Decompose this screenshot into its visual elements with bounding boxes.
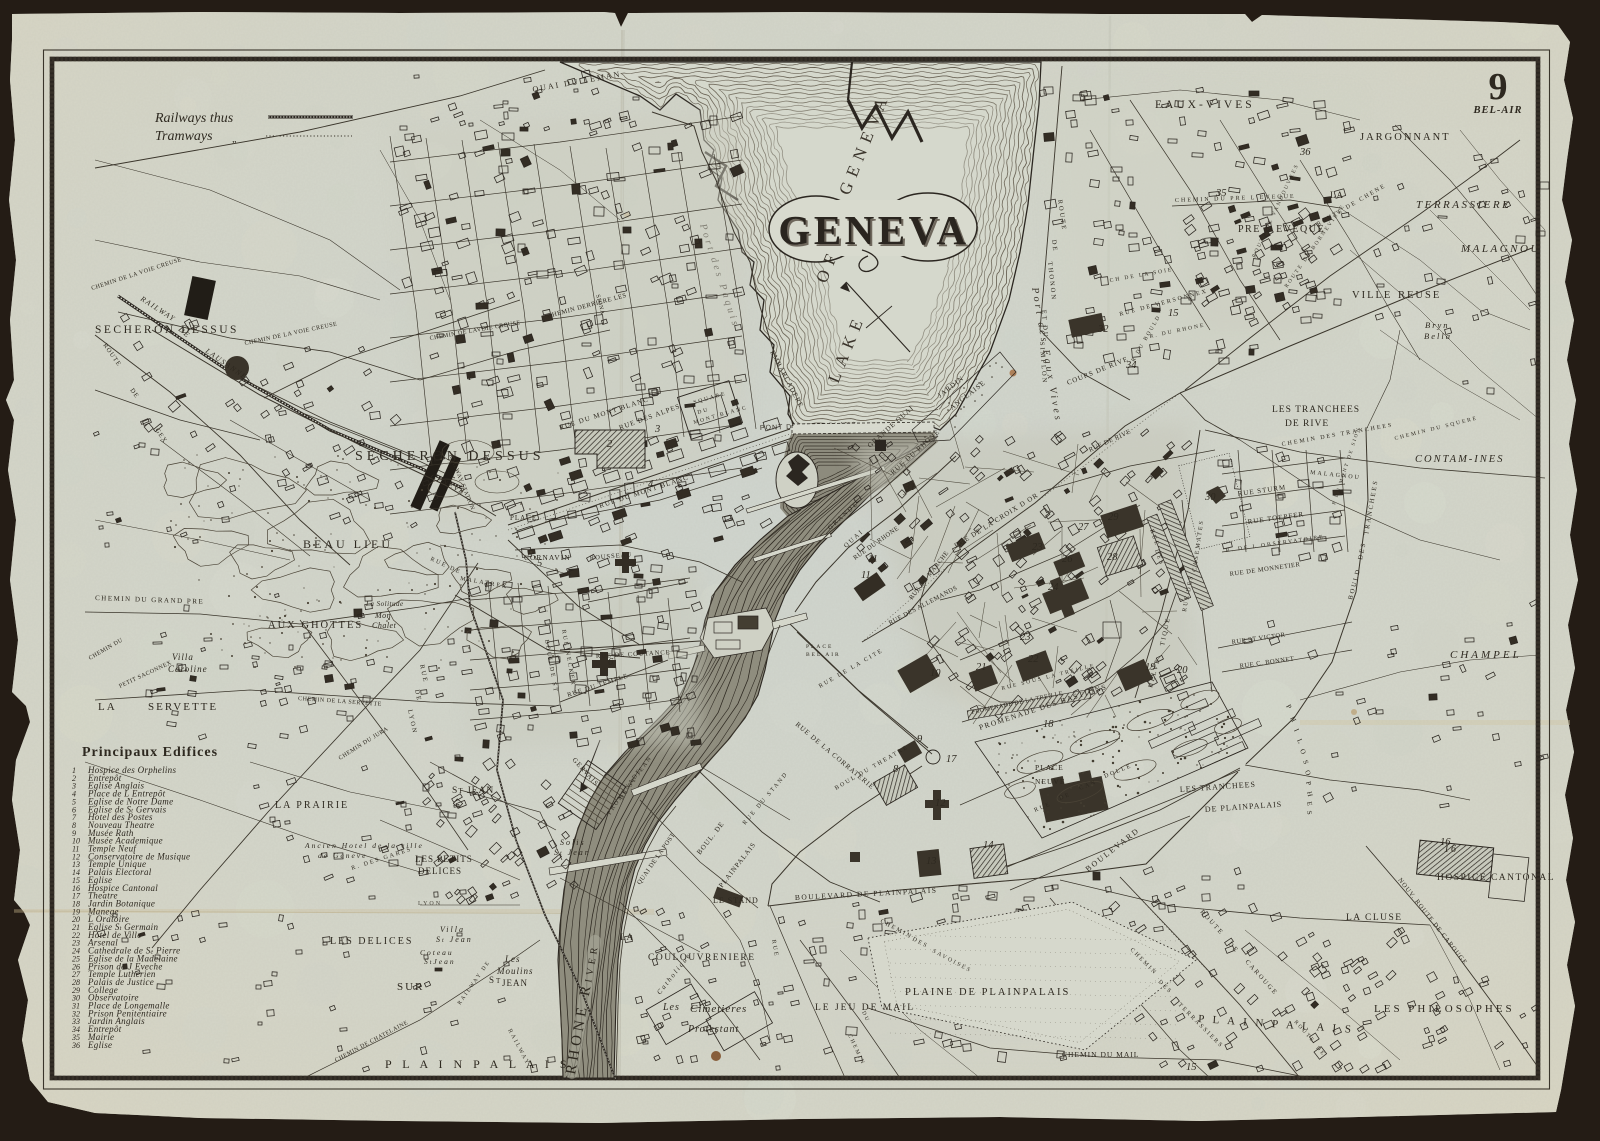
svg-text:AUX GHOTTES: AUX GHOTTES: [268, 620, 363, 631]
svg-text:LA PRAIRIE: LA PRAIRIE: [275, 800, 349, 811]
svg-text:Protestant: Protestant: [687, 1024, 739, 1035]
svg-text:23: 23: [1032, 542, 1043, 553]
svg-text:St Jean: St Jean: [436, 935, 473, 944]
svg-text:29: 29: [1108, 512, 1119, 523]
svg-text:SERVETTE: SERVETTE: [148, 701, 218, 713]
svg-text:DE RIVE: DE RIVE: [1285, 419, 1329, 429]
svg-text:4: 4: [648, 479, 654, 490]
svg-text:EAUX-VIVES: EAUX-VIVES: [1155, 99, 1255, 111]
svg-text:Chalet: Chalet: [372, 621, 397, 630]
svg-text:15: 15: [1186, 1062, 1197, 1073]
svg-text:28: 28: [1107, 552, 1118, 563]
svg-text:12: 12: [935, 798, 946, 809]
svg-text:HOSPICE CANTONAL: HOSPICE CANTONAL: [1437, 873, 1555, 883]
svg-text:DELICES: DELICES: [418, 866, 462, 876]
svg-text:Solis: Solis: [560, 838, 586, 847]
svg-text:PLACE: PLACE: [1035, 763, 1064, 772]
svg-text:20: 20: [1177, 665, 1188, 676]
svg-text:Caroline: Caroline: [168, 664, 208, 674]
svg-text:36: 36: [1299, 147, 1311, 158]
svg-text:Mon: Mon: [374, 611, 391, 620]
svg-text:REUSE: REUSE: [1398, 290, 1441, 301]
svg-text:BEL-AIR: BEL-AIR: [1472, 105, 1522, 116]
svg-text:5: 5: [537, 558, 542, 569]
svg-text:SECHERON DESSUS: SECHERON DESSUS: [95, 324, 239, 336]
svg-text:BEL AIR: BEL AIR: [806, 652, 841, 658]
svg-text:SUR: SUR: [397, 981, 424, 993]
svg-text:CHEMIN DU MAIL: CHEMIN DU MAIL: [1062, 1050, 1139, 1059]
svg-text:NEUVE: NEUVE: [1035, 777, 1065, 786]
svg-text:VILLE: VILLE: [1352, 290, 1392, 301]
svg-text:31: 31: [904, 482, 916, 493]
svg-text:14: 14: [983, 840, 994, 851]
svg-text:COULOUVRENIERE: COULOUVRENIERE: [648, 953, 756, 963]
svg-text:de Geneve: de Geneve: [318, 851, 367, 860]
svg-text:24: 24: [1048, 582, 1059, 593]
svg-text:23: 23: [1020, 632, 1031, 643]
svg-text:LA CLUSE: LA CLUSE: [1346, 913, 1403, 923]
svg-text:CONTAM-INES: CONTAM-INES: [1415, 454, 1504, 465]
svg-text:LES PETITS: LES PETITS: [415, 854, 473, 864]
svg-text:PLAINE DE PLAINPALAIS: PLAINE DE PLAINPALAIS: [905, 987, 1070, 998]
svg-text:Les: Les: [504, 954, 521, 964]
svg-text:10: 10: [930, 668, 941, 679]
svg-text:Bella: Bella: [1424, 331, 1452, 341]
svg-text:PLACE: PLACE: [510, 514, 537, 522]
svg-text:1: 1: [467, 372, 472, 383]
svg-text:PLACE: PLACE: [806, 644, 833, 650]
svg-text:Moulins: Moulins: [496, 966, 534, 976]
svg-text:JARGONNANT: JARGONNANT: [1360, 132, 1451, 143]
svg-text:2: 2: [607, 439, 613, 450]
svg-text:LES TRANCHEES: LES TRANCHEES: [1272, 405, 1360, 415]
svg-text:DE: DE: [1050, 239, 1058, 252]
svg-text:PRE L EVEQUE: PRE L EVEQUE: [1238, 224, 1325, 235]
svg-text:Coteau: Coteau: [420, 948, 454, 957]
svg-text:Les: Les: [662, 1002, 680, 1013]
svg-text:34: 34: [1125, 360, 1137, 371]
svg-text:36: 36: [71, 1041, 80, 1050]
svg-text:LA: LA: [1330, 190, 1344, 200]
svg-text:8: 8: [893, 764, 899, 775]
svg-text:CORNAVIN: CORNAVIN: [524, 553, 571, 562]
svg-text:35: 35: [1215, 188, 1227, 199]
svg-text:LE STAND: LE STAND: [713, 896, 759, 905]
svg-text:LA: LA: [98, 701, 117, 713]
svg-text:ST: ST: [489, 975, 502, 985]
svg-text:11: 11: [861, 570, 871, 581]
svg-text:6: 6: [608, 657, 614, 668]
svg-text:La Solitude: La Solitude: [365, 600, 404, 608]
svg-text:17: 17: [946, 754, 957, 765]
svg-text:LES PHILOSOPHES: LES PHILOSOPHES: [1374, 1003, 1515, 1015]
svg-text:27: 27: [1078, 522, 1089, 533]
svg-text:22: 22: [1028, 654, 1039, 665]
svg-text:Villa: Villa: [440, 925, 465, 934]
svg-text:Bryn: Bryn: [1425, 320, 1450, 330]
svg-text:BEAU LIEU: BEAU LIEU: [303, 537, 393, 551]
svg-text:3: 3: [654, 424, 660, 435]
svg-text:TERRASSIERE: TERRASSIERE: [1416, 199, 1511, 211]
svg-text:13: 13: [926, 856, 937, 867]
svg-text:Cimetieres: Cimetieres: [690, 1003, 747, 1015]
svg-text:MALAGNOU: MALAGNOU: [1460, 243, 1541, 255]
svg-text:32: 32: [1097, 324, 1109, 335]
svg-text:CHAMPEL: CHAMPEL: [1450, 649, 1522, 661]
svg-text:StJean: StJean: [424, 957, 456, 966]
svg-text:LES DELICES: LES DELICES: [330, 936, 413, 947]
svg-text:9: 9: [1489, 66, 1508, 108]
svg-text:11: 11: [868, 554, 878, 565]
svg-text:Principaux Edifices: Principaux Edifices: [82, 745, 218, 760]
svg-text:15: 15: [1168, 308, 1179, 319]
svg-text:P L A I N P A L A I S: P L A I N P A L A I S: [385, 1057, 571, 1071]
svg-text:18: 18: [1043, 719, 1054, 730]
svg-text:Tramways: Tramways: [155, 129, 213, 144]
svg-text:16: 16: [1440, 837, 1451, 848]
svg-text:GENEVA: GENEVA: [778, 207, 969, 253]
svg-text:Eglise: Eglise: [87, 1040, 112, 1050]
svg-text:Railways thus: Railways thus: [154, 111, 234, 126]
svg-text:LA: LA: [620, 932, 634, 942]
svg-text:LYON: LYON: [418, 901, 442, 907]
svg-text:JEAN: JEAN: [502, 978, 528, 988]
svg-text:9: 9: [917, 734, 923, 745]
svg-text:ST JEAN: ST JEAN: [452, 786, 494, 796]
svg-text:St Jean: St Jean: [554, 848, 591, 857]
svg-text:Villa: Villa: [172, 652, 194, 662]
svg-text:19: 19: [1145, 662, 1156, 673]
svg-text:21: 21: [976, 662, 987, 673]
svg-text:26: 26: [1062, 554, 1073, 565]
svg-text:30: 30: [1204, 492, 1216, 503]
